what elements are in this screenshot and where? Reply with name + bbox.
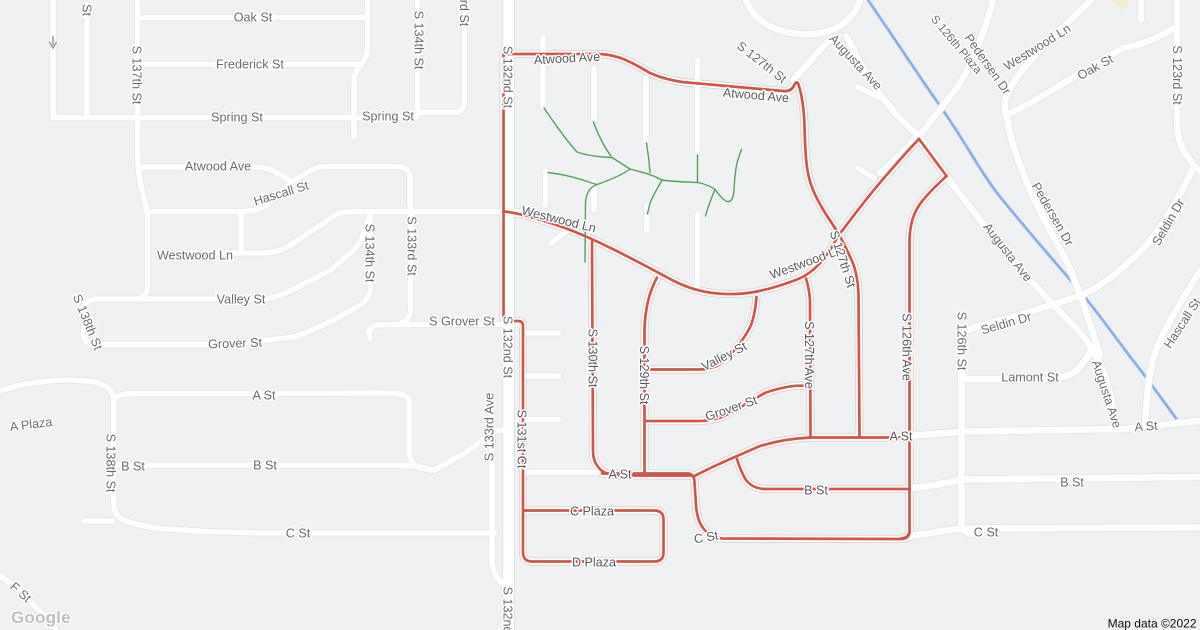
svg-text:C St: C St	[286, 527, 311, 541]
svg-text:B St: B St	[1060, 476, 1084, 490]
svg-text:S 129th St: S 129th St	[637, 346, 651, 405]
svg-text:Westwood Ln: Westwood Ln	[157, 249, 233, 263]
svg-text:Lamont St: Lamont St	[1001, 371, 1059, 385]
svg-text:B St: B St	[804, 484, 828, 498]
svg-text:S 130th St: S 130th St	[586, 329, 600, 388]
svg-text:A St: A St	[252, 389, 276, 403]
svg-text:Spring St: Spring St	[362, 110, 414, 124]
svg-text:Valley St: Valley St	[217, 293, 266, 307]
svg-text:B St: B St	[253, 459, 277, 473]
svg-text:rd St: rd St	[457, 0, 471, 27]
svg-text:S 133rd Ave: S 133rd Ave	[483, 393, 497, 461]
svg-text:S Grover St: S Grover St	[429, 315, 495, 329]
svg-text:St: St	[80, 4, 94, 16]
svg-text:S 138th St: S 138th St	[104, 434, 118, 493]
svg-text:S 137th St: S 137th St	[130, 46, 144, 105]
svg-text:B St: B St	[121, 460, 145, 474]
svg-text:Atwood Ave: Atwood Ave	[185, 160, 251, 174]
svg-text:S 126th St: S 126th St	[955, 312, 969, 371]
svg-text:D Plaza: D Plaza	[572, 556, 616, 570]
svg-text:Spring St: Spring St	[211, 111, 263, 125]
svg-text:A St: A St	[889, 430, 913, 444]
svg-text:A St: A St	[1134, 419, 1159, 435]
svg-text:S 132nd St: S 132nd St	[501, 46, 515, 109]
svg-text:C St: C St	[974, 526, 999, 540]
svg-text:S 134th St: S 134th St	[412, 11, 426, 70]
svg-text:Google: Google	[11, 608, 71, 627]
svg-text:S 127th Ave: S 127th Ave	[802, 321, 816, 389]
svg-text:S 134th St: S 134th St	[363, 224, 377, 283]
svg-text:S 126th Ave: S 126th Ave	[900, 313, 914, 381]
svg-text:S 132nd: S 132nd	[501, 587, 515, 630]
svg-text:A St: A St	[608, 468, 632, 482]
svg-text:Frederick St: Frederick St	[216, 58, 284, 72]
svg-text:Map data ©2022: Map data ©2022	[1108, 617, 1197, 630]
svg-text:S 132nd St: S 132nd St	[501, 316, 515, 379]
svg-text:Oak St: Oak St	[234, 11, 273, 25]
svg-text:S 123rd St: S 123rd St	[1170, 45, 1184, 105]
svg-text:Grover St: Grover St	[208, 336, 263, 352]
svg-text:C Plaza: C Plaza	[570, 505, 614, 519]
svg-text:S 133rd St: S 133rd St	[405, 216, 419, 276]
svg-text:S 131st Ct: S 131st Ct	[515, 410, 529, 469]
